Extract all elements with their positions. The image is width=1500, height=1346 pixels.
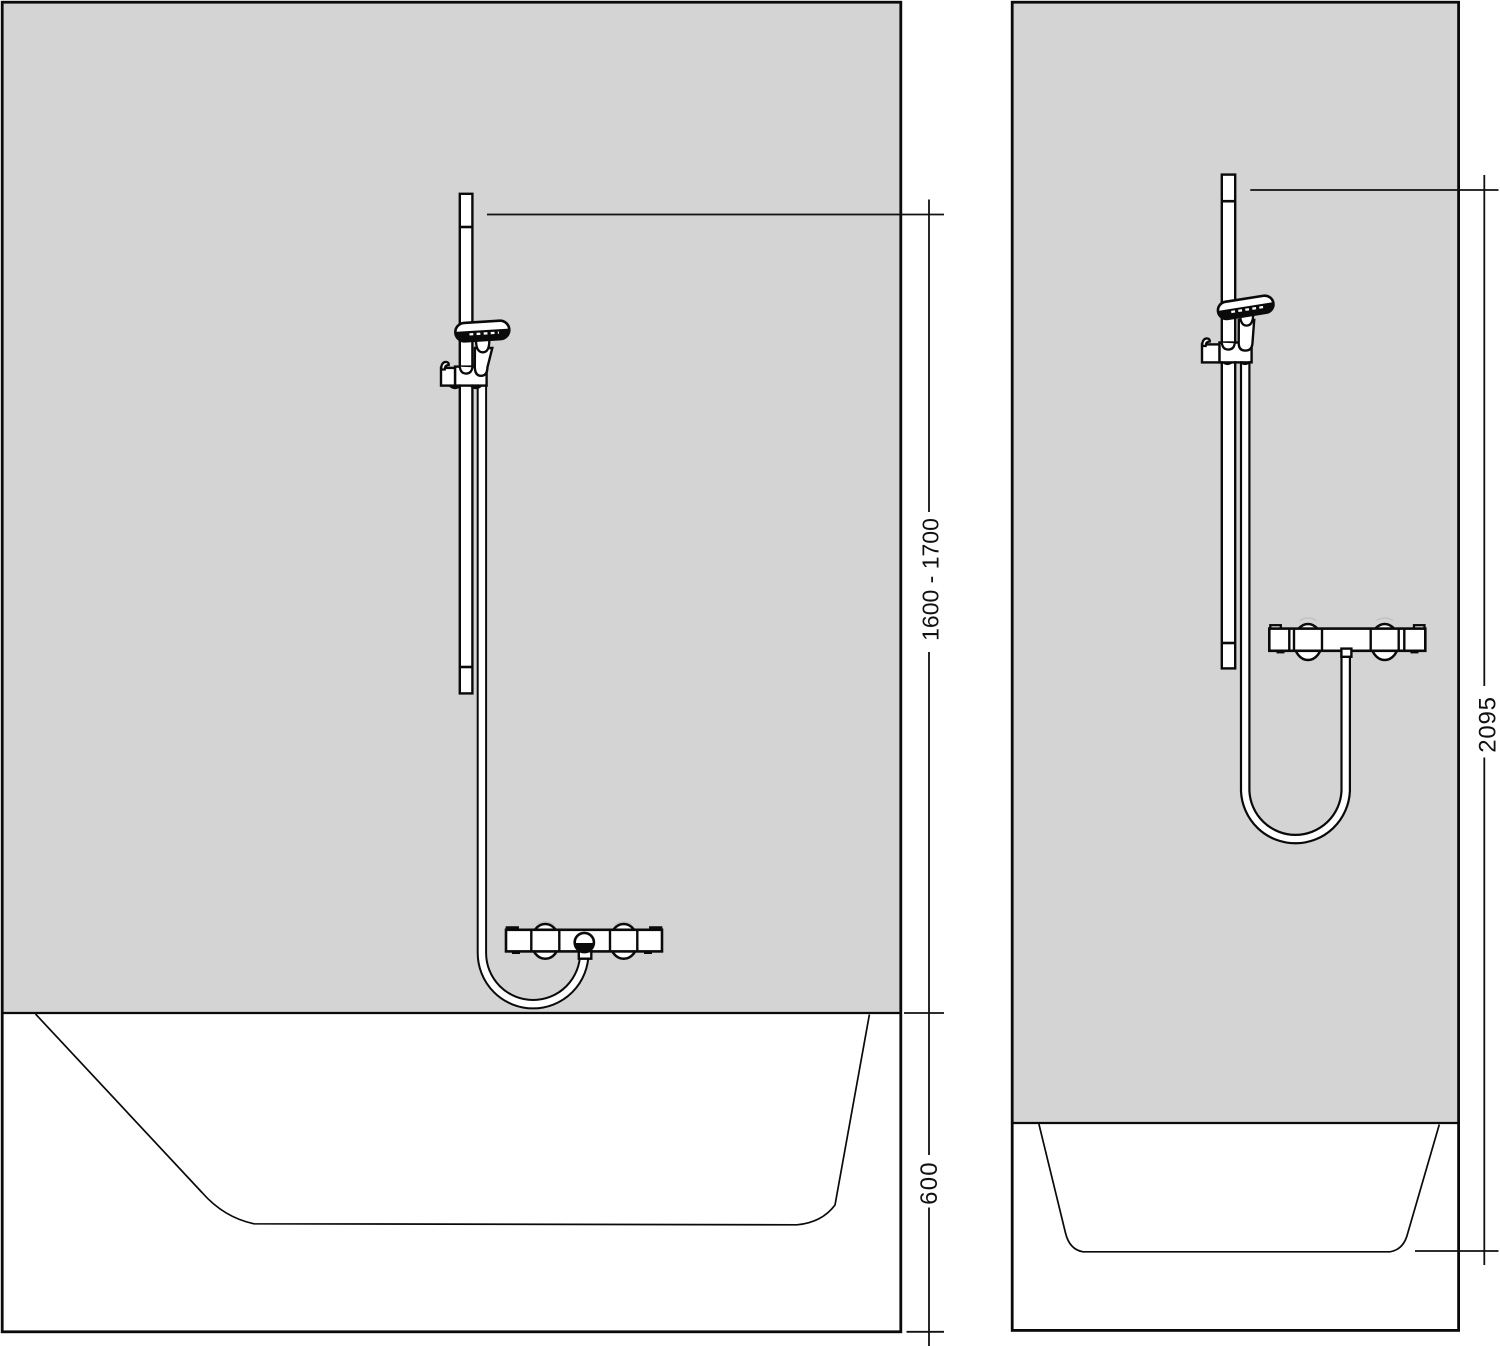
svg-text:2095: 2095 [1475,696,1500,753]
svg-text:1600 - 1700: 1600 - 1700 [917,518,943,641]
svg-text:600: 600 [916,1161,943,1205]
